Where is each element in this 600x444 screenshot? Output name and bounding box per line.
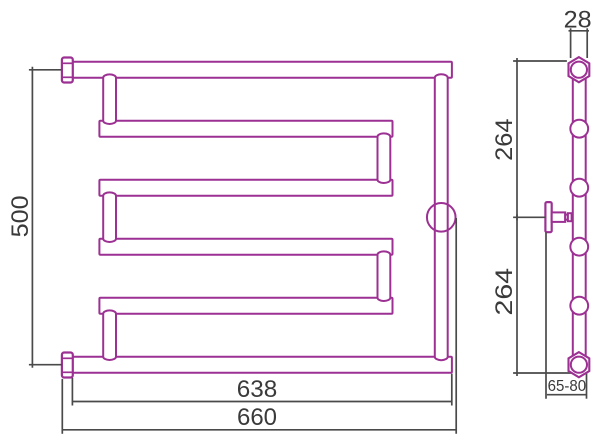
- svg-text:28: 28: [564, 6, 592, 33]
- svg-text:65-80: 65-80: [548, 378, 587, 395]
- svg-text:500: 500: [7, 195, 34, 237]
- svg-text:638: 638: [237, 376, 278, 403]
- svg-text:264: 264: [491, 119, 518, 161]
- svg-text:660: 660: [237, 404, 277, 431]
- svg-text:264: 264: [491, 268, 518, 316]
